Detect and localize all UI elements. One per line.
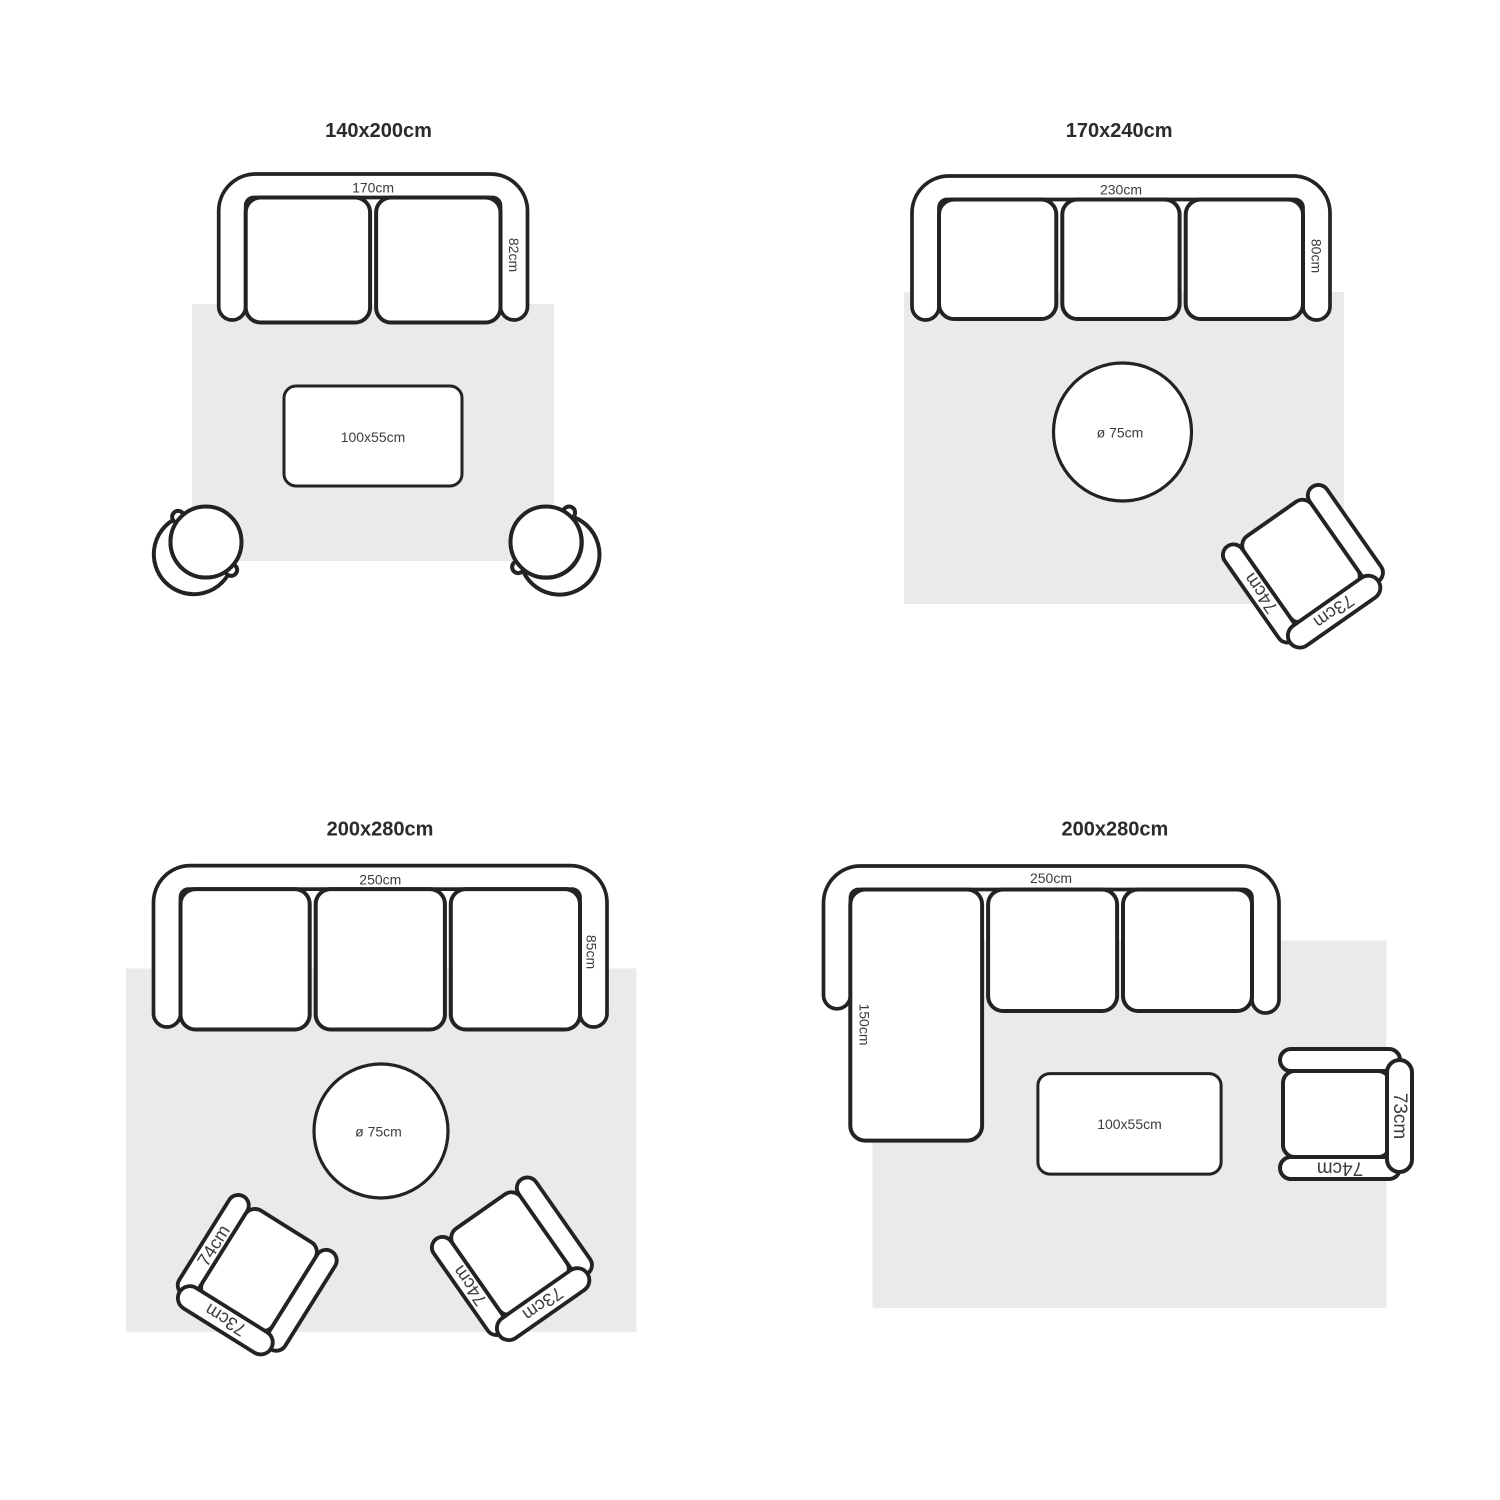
svg-text:ø 75cm: ø 75cm — [355, 1124, 402, 1140]
svg-text:250cm: 250cm — [1030, 870, 1072, 886]
svg-text:ø 75cm: ø 75cm — [1097, 425, 1144, 441]
svg-text:73cm: 73cm — [1389, 1093, 1410, 1139]
svg-text:250cm: 250cm — [359, 871, 401, 887]
svg-text:230cm: 230cm — [1100, 182, 1142, 198]
svg-text:140x200cm: 140x200cm — [325, 120, 432, 142]
svg-text:85cm: 85cm — [584, 935, 600, 969]
svg-text:100x55cm: 100x55cm — [1097, 1116, 1162, 1132]
svg-text:200x280cm: 200x280cm — [327, 819, 434, 841]
svg-text:170cm: 170cm — [352, 180, 394, 196]
svg-text:200x280cm: 200x280cm — [1062, 819, 1169, 841]
svg-text:80cm: 80cm — [1309, 239, 1325, 273]
svg-text:74cm: 74cm — [1317, 1158, 1363, 1179]
svg-text:100x55cm: 100x55cm — [341, 429, 406, 445]
svg-text:150cm: 150cm — [857, 1003, 873, 1045]
svg-text:170x240cm: 170x240cm — [1066, 120, 1173, 142]
svg-text:82cm: 82cm — [506, 238, 522, 272]
